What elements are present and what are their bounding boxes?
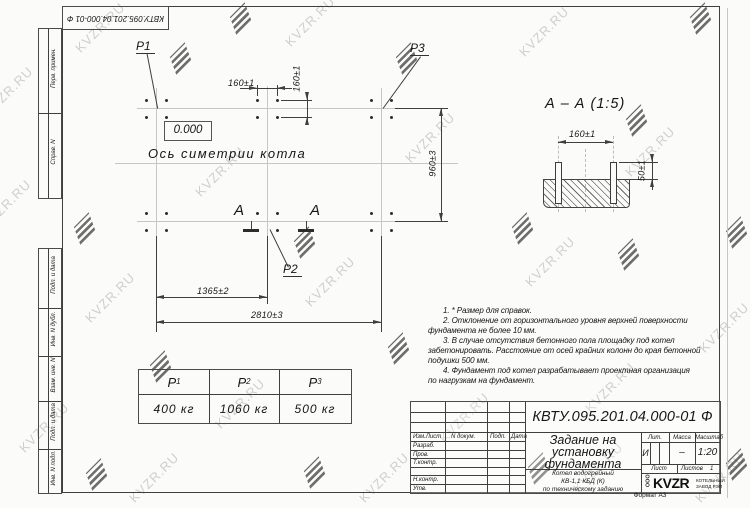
dim-line bbox=[441, 108, 442, 221]
note-line: забетонировать. Расстояние от осей крайн… bbox=[428, 346, 722, 356]
anchor-bolt-dot bbox=[390, 212, 393, 215]
company-logo-text: KVZR bbox=[653, 476, 689, 490]
dim-label: 160±1 bbox=[228, 79, 254, 88]
tb-line bbox=[509, 402, 510, 493]
note-line: фундамента не более 10 мм. bbox=[428, 326, 722, 336]
tb-sheets-label: Листов bbox=[681, 466, 703, 472]
section-cut-mark bbox=[298, 229, 314, 232]
watermark-text: KVZR.RU bbox=[356, 450, 412, 506]
tb-line bbox=[650, 442, 651, 464]
anchor-bolt-dot bbox=[276, 212, 279, 215]
dim-label: 960±3 bbox=[429, 149, 438, 179]
dim-arrow bbox=[156, 295, 164, 299]
tb-mass-label: Масса bbox=[669, 435, 695, 441]
symmetry-axis-label: Ось симетрии котла bbox=[148, 147, 306, 160]
tb-line bbox=[411, 441, 525, 442]
dim-arrow bbox=[305, 92, 309, 100]
elevation-mark-box: 0.000 bbox=[164, 121, 212, 141]
margin-label: Инв. N подл. bbox=[51, 428, 57, 508]
load-table-header: P3 bbox=[279, 370, 351, 394]
dim-arrow bbox=[439, 108, 443, 116]
anchor-bolt-dot bbox=[256, 99, 259, 102]
header-base: P bbox=[308, 376, 317, 389]
dim-arrow bbox=[259, 295, 267, 299]
dim-arrow bbox=[558, 140, 566, 144]
load-point-label-p3: P3 bbox=[410, 42, 429, 56]
tb-line bbox=[445, 402, 446, 493]
watermark-text: KVZR.RU bbox=[302, 254, 358, 310]
corner-designation-text: КВТУ.095.201.04.000-01 Ф bbox=[63, 14, 168, 22]
anchor-bolt bbox=[610, 162, 617, 204]
watermark-text: KVZR.RU bbox=[282, 0, 338, 49]
anchor-bolt-dot bbox=[390, 99, 393, 102]
load-table-header: P2 bbox=[209, 370, 279, 394]
notes-block: 1. * Размер для справок. 2. Отклонение о… bbox=[428, 306, 722, 386]
anchor-bolt-dot bbox=[165, 116, 168, 119]
dim-label: 1365±2 bbox=[197, 287, 229, 296]
margin-divider bbox=[48, 249, 49, 493]
dim-label: 160±1 bbox=[569, 130, 595, 139]
margin-divider bbox=[39, 401, 61, 402]
anchor-bolt-dot bbox=[145, 212, 148, 215]
dim-arrow bbox=[650, 154, 654, 162]
load-table-value: 1060 кг bbox=[209, 394, 279, 423]
watermark-logo-icon bbox=[512, 212, 533, 244]
format-label: Формат А3 bbox=[617, 493, 683, 500]
section-cut-mark bbox=[251, 221, 252, 229]
ext-line bbox=[267, 236, 268, 304]
watermark-logo-icon bbox=[626, 104, 647, 136]
anchor-bolt-dot bbox=[276, 99, 279, 102]
watermark-logo-icon bbox=[170, 42, 191, 74]
anchor-bolt-dot bbox=[165, 99, 168, 102]
anchor-bolt-dot bbox=[390, 116, 393, 119]
watermark-logo-icon bbox=[304, 456, 325, 488]
company-name-line: ЗАВОД РЭП bbox=[696, 485, 722, 490]
header-sub: 3 bbox=[317, 378, 321, 386]
load-table: P1 P2 P3 400 кг 1060 кг 500 кг bbox=[138, 369, 352, 424]
tb-designation: КВТУ.095.201.04.000-01 Ф bbox=[525, 402, 720, 432]
tb-line bbox=[411, 450, 525, 451]
margin-label: Перв. примен. bbox=[51, 28, 57, 108]
header-base: P bbox=[237, 376, 246, 389]
anchor-bolt-dot bbox=[370, 116, 373, 119]
anchor-bolt bbox=[555, 162, 562, 204]
tb-title-line: фундамента bbox=[525, 458, 641, 471]
margin-box-top bbox=[38, 28, 62, 199]
ext-line bbox=[156, 236, 157, 332]
dim-arrow bbox=[605, 140, 613, 144]
dim-line bbox=[156, 322, 381, 323]
ext-line bbox=[257, 85, 258, 96]
margin-box-bottom bbox=[38, 248, 62, 494]
tb-line bbox=[411, 412, 525, 413]
dim-arrow bbox=[373, 320, 381, 324]
section-view-title: А – А (1:5) bbox=[545, 97, 625, 112]
anchor-bolt-dot bbox=[370, 212, 373, 215]
tb-col-header: Изм.Лист bbox=[413, 434, 441, 440]
tb-row-label: Утв. bbox=[413, 486, 427, 492]
anchor-bolt-dot bbox=[370, 229, 373, 232]
tb-line bbox=[641, 442, 720, 443]
anchor-bolt-dot bbox=[165, 229, 168, 232]
watermark-logo-icon bbox=[690, 2, 711, 34]
section-letter: А bbox=[310, 203, 320, 218]
watermark-logo-icon bbox=[726, 216, 747, 248]
anchor-bolt-dot bbox=[256, 229, 259, 232]
anchor-bolt-dot bbox=[145, 99, 148, 102]
header-sub: 1 bbox=[176, 378, 180, 386]
tb-col-header: N докум. bbox=[451, 434, 475, 440]
anchor-bolt-dot bbox=[276, 229, 279, 232]
tb-scale-value: 1:20 bbox=[695, 448, 720, 458]
page-edge-line bbox=[727, 8, 728, 498]
section-letter: А bbox=[234, 203, 244, 218]
watermark-text: KVZR.RU bbox=[0, 64, 36, 120]
elevation-value: 0.000 bbox=[165, 122, 211, 140]
anchor-bolt-dot bbox=[145, 229, 148, 232]
watermark-logo-icon bbox=[230, 2, 251, 34]
load-point-label-p2: P2 bbox=[283, 263, 302, 277]
margin-label: Справ. N bbox=[51, 112, 57, 192]
watermark-text: KVZR.RU bbox=[522, 234, 578, 290]
anchor-bolt-dot bbox=[370, 99, 373, 102]
tb-line bbox=[487, 402, 488, 493]
margin-divider bbox=[39, 356, 61, 357]
anchor-bolt-dot bbox=[256, 212, 259, 215]
watermark-text: KVZR.RU bbox=[0, 177, 34, 233]
tb-scale-label: Масштаб bbox=[695, 435, 720, 441]
dim-arrow bbox=[439, 213, 443, 221]
note-line: по нагрузкам на фундамент. bbox=[428, 376, 722, 386]
tb-line bbox=[411, 458, 525, 459]
frame-line bbox=[62, 6, 63, 492]
watermark-logo-icon bbox=[74, 212, 95, 244]
dim-label: 50±1 bbox=[638, 156, 647, 186]
tb-line bbox=[411, 475, 525, 476]
margin-divider bbox=[39, 449, 61, 450]
tb-lit-value: И bbox=[641, 449, 650, 458]
tb-row-label: Т.контр. bbox=[413, 460, 437, 466]
load-table-header: P1 bbox=[139, 370, 209, 394]
tb-row-label: Разраб. bbox=[413, 443, 435, 449]
tb-line bbox=[411, 484, 525, 485]
tb-line bbox=[659, 442, 660, 464]
tb-line bbox=[641, 464, 720, 465]
watermark-text: KVZR.RU bbox=[82, 270, 138, 326]
symmetry-axis-line bbox=[115, 163, 458, 164]
company-name-line: КОТЕЛЬНЫЙ bbox=[696, 479, 725, 484]
watermark-text: KVZR.RU bbox=[126, 450, 182, 506]
section-cut-mark bbox=[306, 221, 307, 229]
anchor-bolt-dot bbox=[165, 212, 168, 215]
tb-lit-label: Лит. bbox=[641, 435, 669, 441]
load-table-value: 400 кг bbox=[139, 394, 209, 423]
tb-line bbox=[411, 422, 525, 423]
load-point-label-p1: P1 bbox=[136, 40, 155, 54]
company-ooo-label: ООО bbox=[646, 471, 652, 491]
anchor-bolt-dot bbox=[256, 116, 259, 119]
watermark-logo-icon bbox=[86, 458, 107, 490]
tb-line bbox=[677, 464, 678, 473]
dim-arrow bbox=[277, 86, 285, 90]
margin-divider bbox=[39, 308, 61, 309]
header-sub: 2 bbox=[246, 378, 250, 386]
header-base: P bbox=[167, 376, 176, 389]
watermark-logo-icon bbox=[618, 238, 639, 270]
tb-col-header: Подп. bbox=[490, 434, 506, 440]
note-line: 3. В случае отсутствия бетонного пола пл… bbox=[428, 336, 722, 346]
tb-sheets-value: 1 bbox=[710, 466, 713, 472]
margin-divider bbox=[39, 113, 61, 114]
dim-label: 160±1 bbox=[293, 64, 302, 94]
tb-mass-value: – bbox=[669, 448, 695, 458]
note-line: 2. Отклонение от горизонтального уровня … bbox=[428, 316, 722, 326]
dim-arrow bbox=[156, 320, 164, 324]
tb-row-label: Пров. bbox=[413, 452, 429, 458]
load-table-value: 500 кг bbox=[279, 394, 351, 423]
note-line: 1. * Размер для справок. bbox=[428, 306, 722, 316]
dim-line bbox=[156, 297, 267, 298]
corner-designation-stamp: КВТУ.095.201.04.000-01 Ф bbox=[62, 6, 169, 30]
ext-line bbox=[381, 236, 382, 332]
watermark-logo-icon bbox=[388, 332, 409, 364]
note-line: 4. Фундамент под котел разрабатывает про… bbox=[428, 366, 722, 376]
tb-line bbox=[641, 473, 720, 474]
anchor-bolt-dot bbox=[145, 116, 148, 119]
dim-arrow bbox=[650, 179, 654, 187]
tb-row-label: Н.контр. bbox=[413, 477, 438, 483]
tb-product-line: КВ-1,1 КБД (К) bbox=[525, 479, 641, 486]
note-line: подушки 500 мм. bbox=[428, 356, 722, 366]
title-block: КВТУ.095.201.04.000-01 Ф Изм.Лист N доку… bbox=[410, 401, 721, 494]
anchor-bolt-dot bbox=[276, 116, 279, 119]
tb-product-line: Котел водогрейный bbox=[525, 471, 641, 478]
ext-line bbox=[395, 221, 448, 222]
anchor-bolt-dot bbox=[390, 229, 393, 232]
tb-line bbox=[411, 467, 525, 468]
scanned-drawing-page: { "watermark": {"text": "KVZR.RU"}, "cor… bbox=[0, 0, 750, 500]
dim-label: 2810±3 bbox=[251, 311, 283, 320]
watermark-text: KVZR.RU bbox=[516, 4, 572, 60]
dim-arrow bbox=[305, 117, 309, 125]
